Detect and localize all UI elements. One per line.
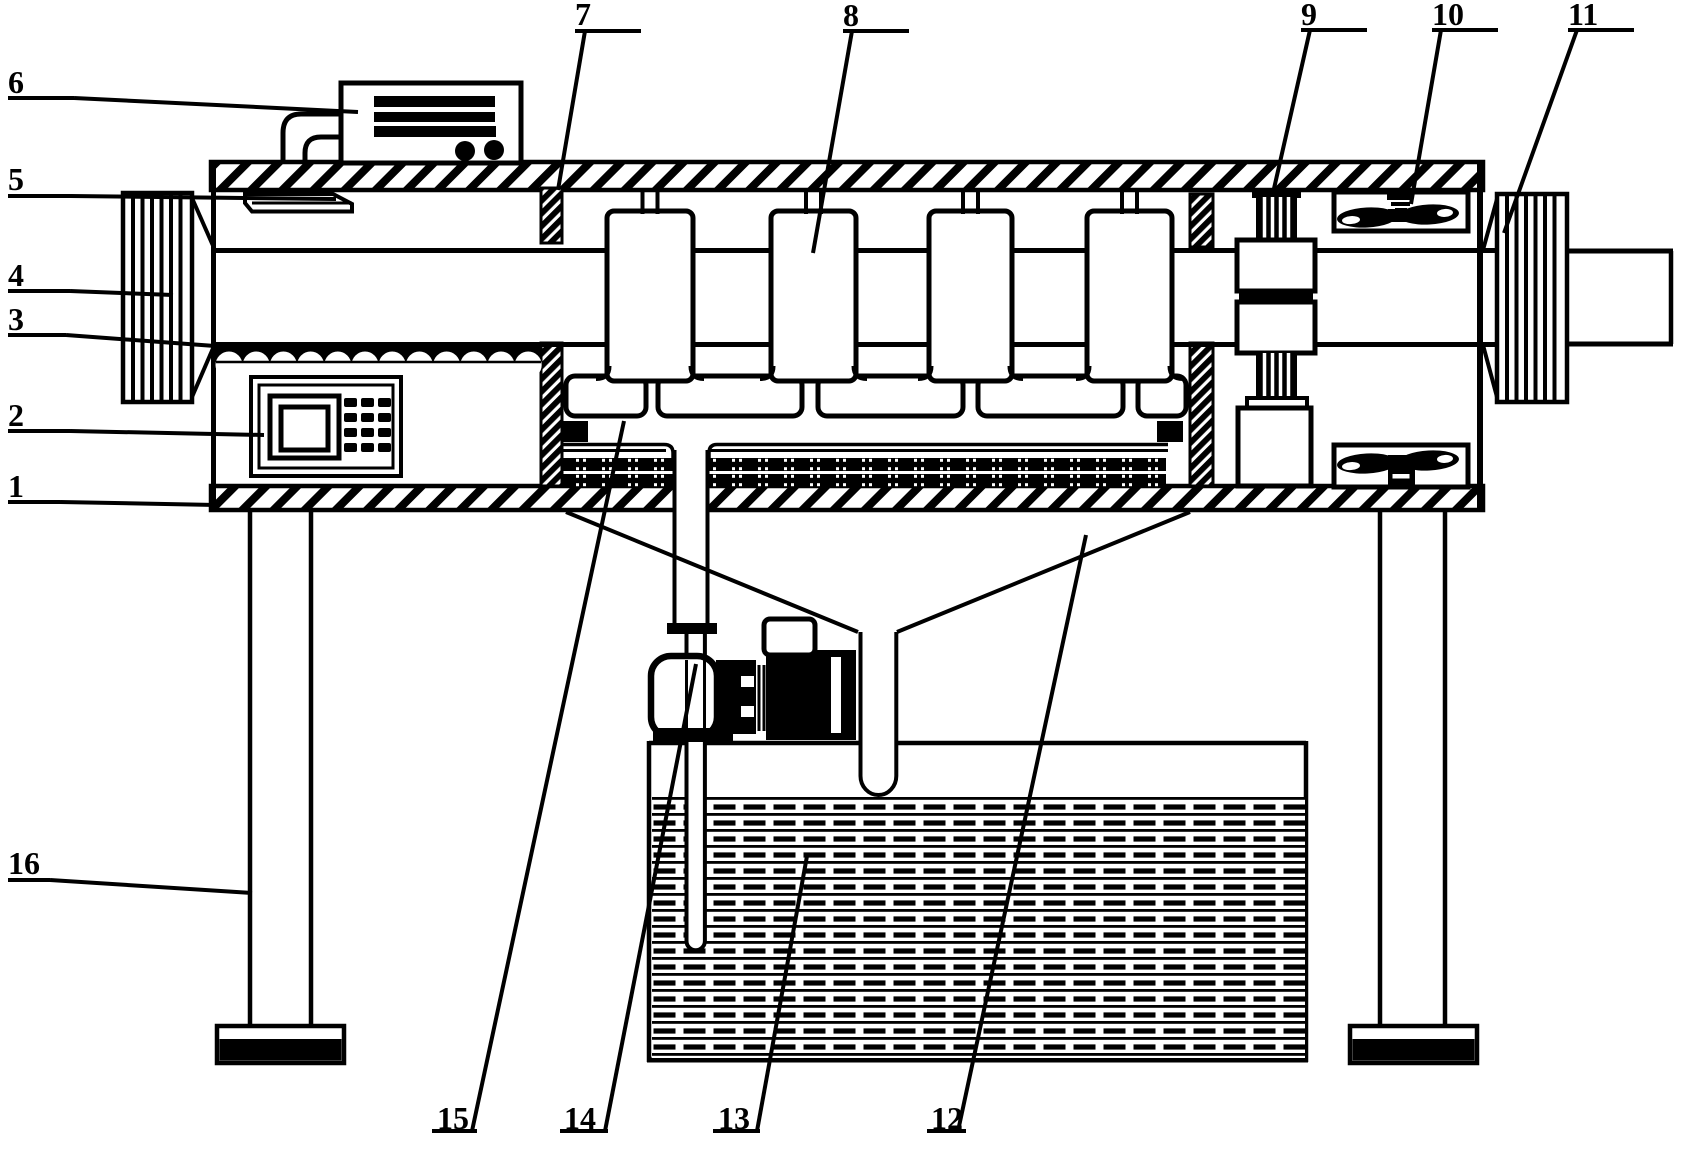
svg-text:2: 2 bbox=[8, 397, 24, 433]
svg-text:3: 3 bbox=[8, 301, 24, 337]
svg-text:9: 9 bbox=[1301, 0, 1317, 32]
svg-text:6: 6 bbox=[8, 64, 24, 100]
svg-text:5: 5 bbox=[8, 161, 24, 197]
svg-text:7: 7 bbox=[575, 0, 591, 32]
svg-text:8: 8 bbox=[843, 0, 859, 33]
svg-text:4: 4 bbox=[8, 257, 24, 293]
svg-text:13: 13 bbox=[718, 1100, 750, 1136]
svg-text:1: 1 bbox=[8, 468, 24, 504]
svg-text:16: 16 bbox=[8, 845, 40, 881]
svg-text:12: 12 bbox=[931, 1100, 963, 1136]
svg-text:11: 11 bbox=[1568, 0, 1598, 32]
svg-text:15: 15 bbox=[437, 1100, 469, 1136]
svg-text:14: 14 bbox=[564, 1100, 596, 1136]
svg-text:10: 10 bbox=[1432, 0, 1464, 32]
